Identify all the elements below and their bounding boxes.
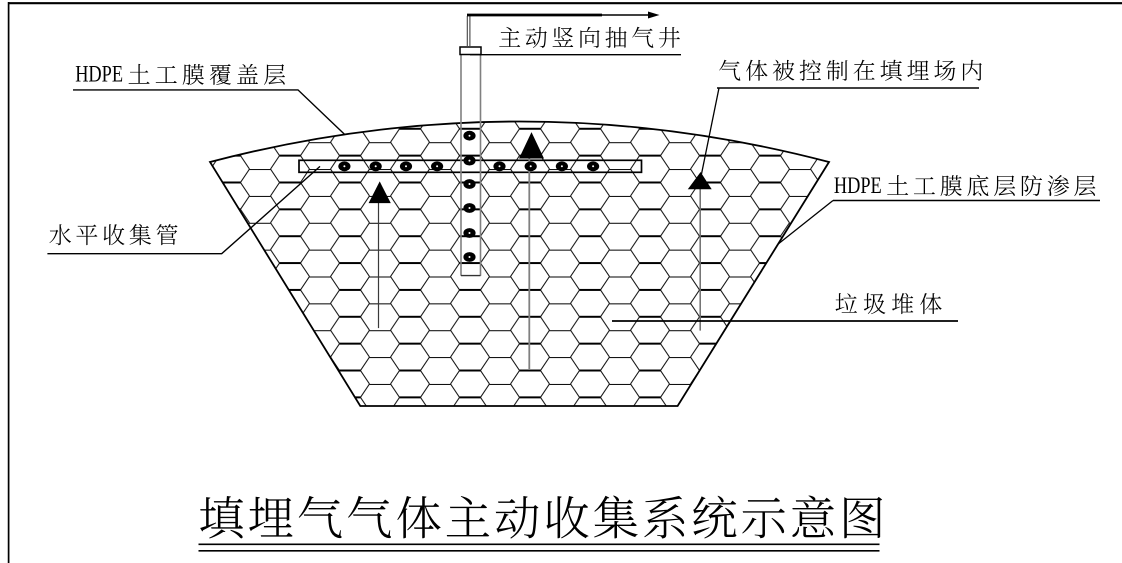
svg-text:HDPE: HDPE — [834, 172, 882, 199]
svg-text:HDPE: HDPE — [75, 61, 123, 88]
